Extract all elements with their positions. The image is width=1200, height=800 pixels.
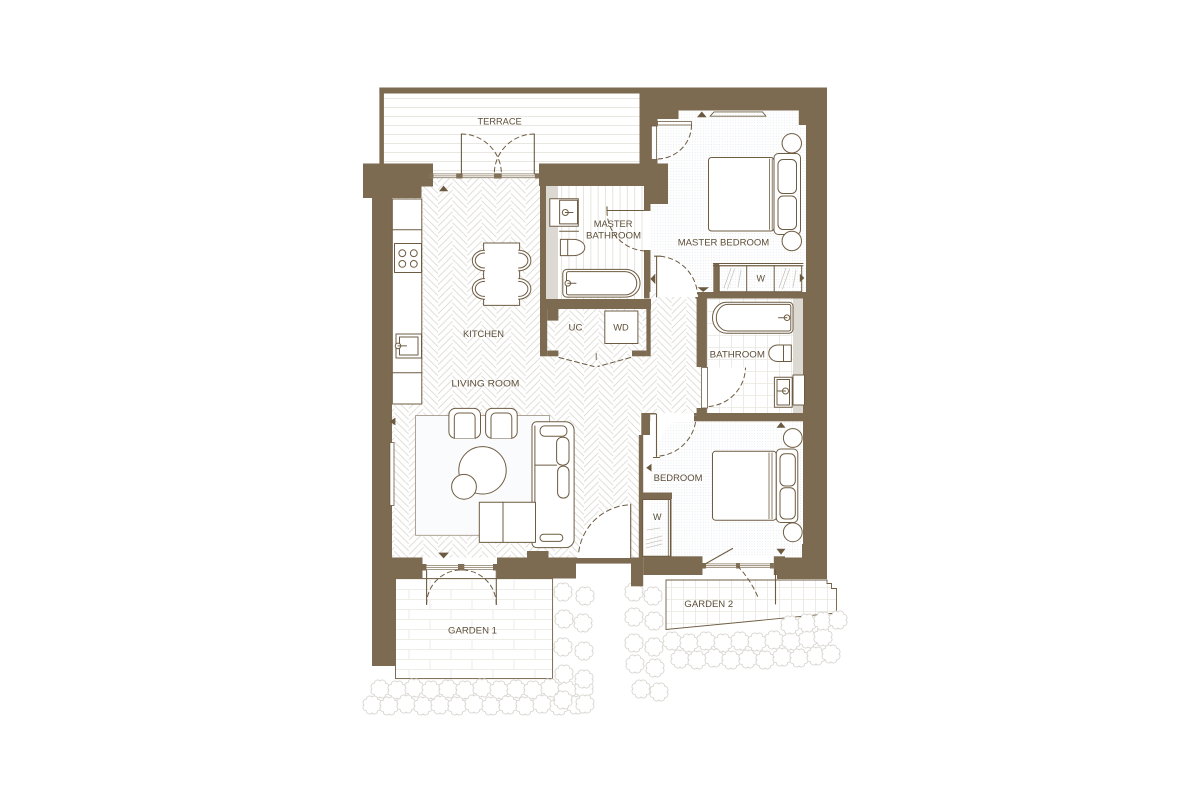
svg-text:BATHROOM: BATHROOM (586, 229, 641, 240)
svg-text:TERRACE: TERRACE (478, 116, 522, 127)
svg-text:UC: UC (569, 321, 583, 332)
svg-text:GARDEN 1: GARDEN 1 (448, 624, 497, 635)
svg-text:WD: WD (613, 321, 629, 332)
svg-text:W: W (756, 273, 765, 284)
svg-text:LIVING ROOM: LIVING ROOM (451, 378, 519, 389)
svg-text:BEDROOM: BEDROOM (654, 472, 703, 483)
svg-text:MASTER: MASTER (594, 218, 633, 229)
svg-text:MASTER BEDROOM: MASTER BEDROOM (678, 236, 770, 247)
svg-text:W: W (653, 511, 662, 522)
svg-text:GARDEN 2: GARDEN 2 (684, 598, 733, 609)
svg-text:KITCHEN: KITCHEN (463, 328, 504, 339)
svg-text:BATHROOM: BATHROOM (710, 348, 765, 359)
